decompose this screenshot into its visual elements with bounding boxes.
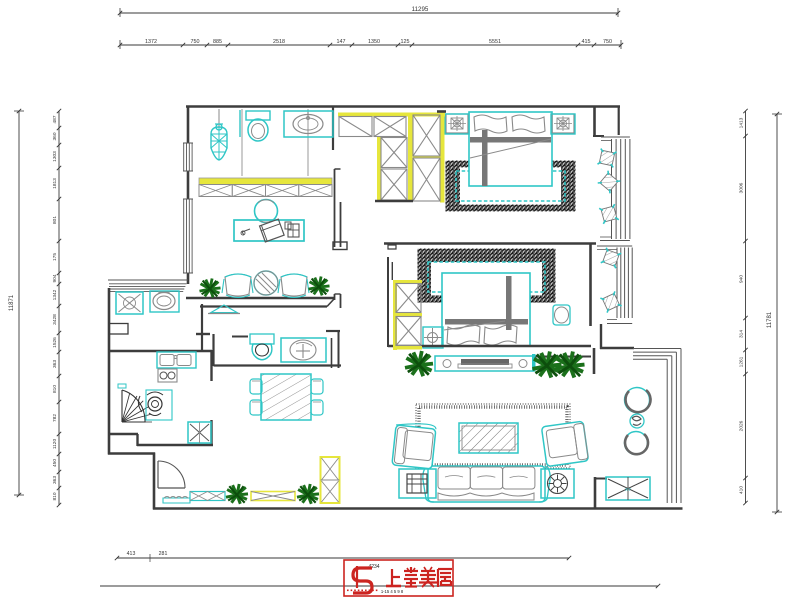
svg-text:1372: 1372 [145,39,157,45]
svg-text:11871: 11871 [9,294,15,311]
svg-text:125: 125 [401,39,410,45]
svg-text:3006: 3006 [739,182,745,193]
svg-text:450: 450 [52,459,58,467]
svg-text:1261: 1261 [739,356,745,367]
svg-text:XY: XY [625,487,631,492]
svg-text:175: 175 [52,253,58,261]
svg-text:750: 750 [191,39,200,45]
svg-text:415: 415 [582,39,591,45]
svg-text:360: 360 [52,132,58,140]
svg-text:782: 782 [52,414,58,422]
svg-text:5551: 5551 [489,39,501,45]
svg-text:1413: 1413 [739,117,745,128]
svg-text:11295: 11295 [412,6,429,13]
svg-text:750: 750 [603,39,612,45]
svg-text:1303: 1303 [52,151,58,162]
svg-text:2518: 2518 [273,39,285,45]
svg-text:810: 810 [52,492,58,500]
svg-text:1-15 4 5 9 8: 1-15 4 5 9 8 [381,589,404,594]
svg-text:801: 801 [52,216,58,224]
svg-text:314: 314 [739,330,745,338]
svg-text:363: 363 [52,360,58,368]
svg-text:281: 281 [159,551,168,557]
svg-text:904: 904 [52,274,58,282]
svg-text:1813: 1813 [52,178,58,189]
svg-text:1350: 1350 [368,39,380,45]
svg-text:940: 940 [739,275,745,283]
svg-text:3428: 3428 [52,314,58,325]
svg-text:885: 885 [213,39,222,45]
svg-text:413: 413 [127,551,136,557]
svg-text:487: 487 [52,115,58,123]
svg-text:1526: 1526 [52,337,58,348]
svg-text:1342: 1342 [52,289,58,300]
svg-text:147: 147 [337,39,346,45]
svg-text:1120: 1120 [52,439,58,450]
svg-text:2026: 2026 [739,420,745,431]
svg-text:11781: 11781 [767,311,773,328]
svg-text:363: 363 [52,476,58,484]
svg-text:410: 410 [739,486,745,494]
svg-text:810: 810 [52,385,58,393]
